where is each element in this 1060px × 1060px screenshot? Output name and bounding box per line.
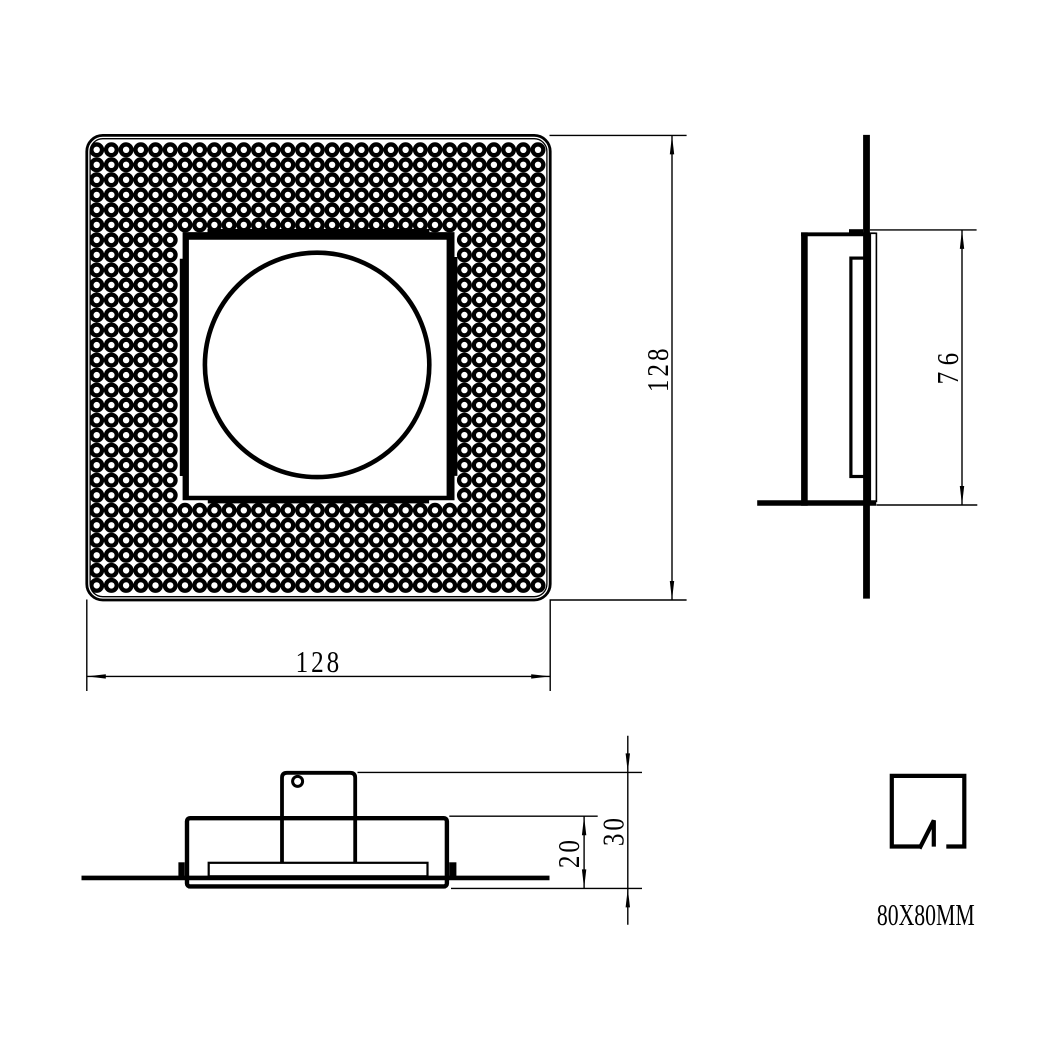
svg-text:76: 76 [932, 346, 966, 384]
svg-text:80X80MM: 80X80MM [877, 897, 975, 932]
svg-text:20: 20 [553, 837, 587, 868]
svg-text:128: 128 [642, 345, 676, 392]
svg-text:128: 128 [296, 646, 343, 680]
svg-text:30: 30 [597, 815, 631, 846]
